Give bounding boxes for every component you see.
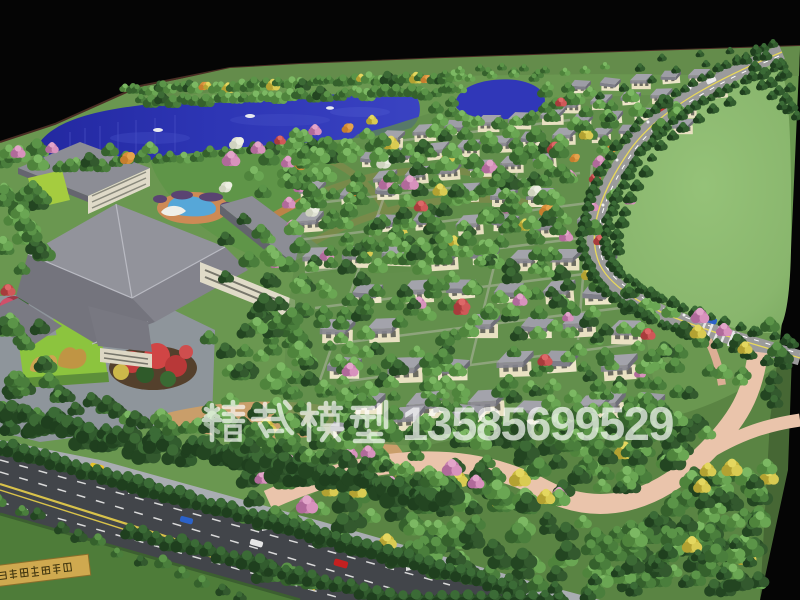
svg-text:13585699529: 13585699529 xyxy=(402,397,673,450)
